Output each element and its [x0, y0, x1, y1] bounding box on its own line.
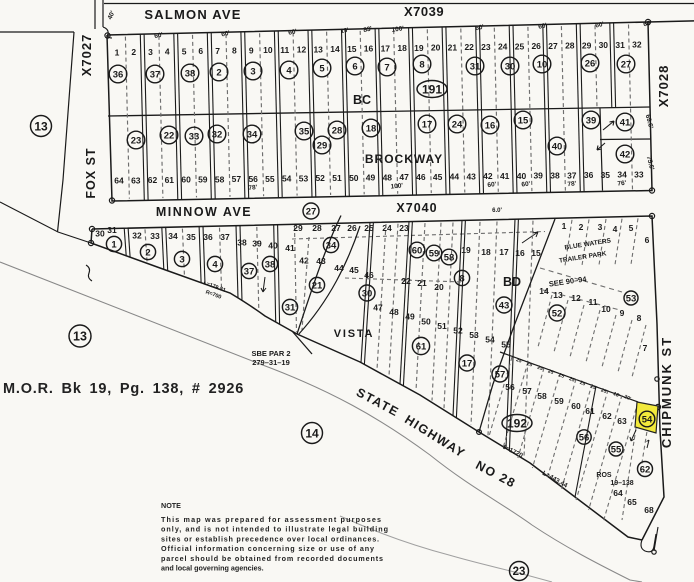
svg-text:BROCKWAY: BROCKWAY [365, 152, 443, 166]
svg-text:47: 47 [373, 303, 383, 313]
svg-text:55: 55 [501, 339, 511, 349]
svg-text:32: 32 [132, 231, 142, 241]
svg-text:Official information concernin: Official information concerning size or … [161, 544, 374, 553]
svg-text:36: 36 [113, 69, 124, 80]
svg-text:61: 61 [585, 406, 595, 416]
svg-text:1: 1 [111, 239, 117, 250]
svg-text:18: 18 [366, 123, 377, 134]
svg-text:38: 38 [185, 68, 196, 79]
svg-text:20: 20 [434, 282, 444, 292]
svg-text:36: 36 [584, 170, 594, 180]
svg-text:52: 52 [315, 173, 325, 183]
svg-text:38: 38 [265, 259, 276, 270]
svg-text:60: 60 [571, 401, 581, 411]
svg-text:1: 1 [115, 48, 120, 58]
svg-text:59: 59 [429, 248, 440, 259]
svg-text:63: 63 [131, 175, 141, 185]
svg-text:61: 61 [165, 175, 175, 185]
svg-text:57: 57 [495, 369, 506, 380]
svg-text:21: 21 [448, 42, 458, 52]
svg-text:6: 6 [645, 235, 650, 245]
svg-text:279–31–19: 279–31–19 [252, 358, 290, 367]
svg-text:31: 31 [107, 225, 117, 235]
svg-text:SBE PAR 2: SBE PAR 2 [251, 349, 290, 358]
svg-text:56: 56 [248, 174, 258, 184]
svg-text:52: 52 [453, 326, 463, 336]
svg-text:48: 48 [383, 172, 393, 182]
svg-text:61: 61 [416, 341, 427, 352]
svg-text:54: 54 [642, 414, 653, 425]
svg-text:11: 11 [589, 297, 598, 307]
svg-text:17: 17 [462, 358, 473, 369]
svg-text:15: 15 [531, 248, 541, 258]
svg-text:52: 52 [552, 308, 563, 319]
svg-text:X7027: X7027 [79, 34, 94, 77]
svg-text:192: 192 [507, 416, 527, 430]
svg-text:7: 7 [384, 62, 389, 73]
svg-text:59: 59 [554, 396, 564, 406]
svg-text:BD: BD [503, 275, 521, 289]
svg-text:45: 45 [433, 172, 443, 182]
svg-text:30: 30 [95, 229, 105, 239]
svg-text:54: 54 [282, 174, 292, 184]
svg-text:62: 62 [148, 175, 158, 185]
svg-text:6: 6 [352, 61, 357, 72]
svg-text:X7040: X7040 [396, 201, 437, 215]
svg-text:23: 23 [513, 566, 526, 578]
svg-text:38: 38 [237, 238, 247, 248]
svg-text:30: 30 [599, 40, 609, 50]
svg-text:46: 46 [416, 172, 426, 182]
svg-text:19: 19 [414, 43, 424, 53]
svg-text:37: 37 [150, 69, 161, 80]
svg-text:64: 64 [613, 488, 623, 498]
svg-text:34: 34 [617, 170, 627, 180]
svg-text:37: 37 [244, 266, 255, 277]
svg-text:43: 43 [499, 300, 510, 311]
svg-text:60: 60 [412, 245, 423, 256]
svg-text:100': 100' [390, 182, 404, 190]
svg-text:57: 57 [232, 174, 242, 184]
svg-text:20: 20 [431, 43, 441, 53]
svg-text:M.O.R. Bk 19, Pg. 138, # 2926: M.O.R. Bk 19, Pg. 138, # 2926 [3, 381, 244, 397]
svg-text:17: 17 [499, 247, 509, 257]
svg-text:55: 55 [611, 444, 622, 455]
svg-text:78': 78' [248, 184, 258, 192]
svg-text:13: 13 [73, 330, 87, 344]
svg-text:26: 26 [347, 223, 357, 233]
svg-text:3: 3 [148, 47, 153, 57]
svg-text:10: 10 [263, 45, 273, 55]
svg-text:only, and is not intended to i: only, and is not intended to illustrate … [161, 525, 388, 534]
svg-text:44: 44 [450, 172, 460, 182]
svg-text:45: 45 [349, 265, 359, 275]
svg-text:51: 51 [437, 321, 447, 331]
svg-text:57: 57 [522, 386, 532, 396]
svg-text:3: 3 [179, 254, 184, 265]
svg-text:35: 35 [601, 170, 611, 180]
svg-text:55: 55 [265, 174, 275, 184]
svg-text:50: 50 [421, 316, 431, 326]
svg-text:X7039: X7039 [404, 4, 444, 19]
svg-text:58: 58 [444, 252, 455, 263]
svg-text:6.0': 6.0' [492, 208, 502, 214]
svg-text:17: 17 [422, 119, 433, 130]
svg-text:24: 24 [498, 42, 508, 52]
svg-text:2: 2 [131, 47, 136, 57]
svg-text:32: 32 [212, 129, 223, 140]
svg-text:8: 8 [459, 273, 464, 284]
svg-text:8: 8 [637, 313, 642, 323]
svg-text:58: 58 [215, 174, 225, 184]
svg-text:4: 4 [212, 259, 218, 270]
svg-text:34: 34 [168, 231, 178, 241]
svg-text:47: 47 [399, 172, 409, 182]
svg-text:4: 4 [613, 224, 618, 234]
svg-text:48: 48 [389, 307, 399, 317]
svg-text:59: 59 [198, 175, 208, 185]
svg-text:13: 13 [553, 290, 563, 300]
svg-text:39: 39 [252, 239, 262, 249]
svg-text:and local governing agencies.: and local governing agencies. [161, 564, 264, 573]
svg-text:15: 15 [347, 44, 357, 54]
svg-text:34: 34 [247, 129, 258, 140]
svg-text:41: 41 [620, 117, 631, 128]
svg-text:16: 16 [515, 248, 525, 258]
svg-text:NOTE: NOTE [161, 501, 181, 510]
svg-text:39: 39 [586, 115, 597, 126]
svg-text:23: 23 [131, 135, 142, 146]
svg-text:11: 11 [280, 45, 289, 55]
svg-text:9: 9 [620, 308, 625, 318]
svg-text:53: 53 [299, 173, 309, 183]
svg-text:37: 37 [220, 232, 230, 242]
svg-text:28: 28 [312, 223, 322, 233]
svg-text:22: 22 [164, 130, 175, 141]
svg-text:This map was prepared for asse: This map was prepared for assessment pur… [161, 515, 381, 524]
svg-text:38: 38 [550, 171, 560, 181]
svg-text:31: 31 [470, 61, 481, 72]
svg-text:13: 13 [34, 119, 48, 133]
svg-text:7: 7 [643, 343, 648, 353]
svg-text:40: 40 [552, 141, 563, 152]
svg-text:16: 16 [364, 44, 374, 54]
svg-text:49: 49 [405, 312, 415, 322]
svg-text:10: 10 [537, 59, 548, 70]
svg-text:17: 17 [381, 43, 391, 53]
svg-text:19–138: 19–138 [610, 480, 633, 487]
svg-text:39: 39 [533, 171, 543, 181]
svg-text:8: 8 [232, 46, 237, 56]
svg-text:4: 4 [165, 47, 170, 57]
svg-text:23: 23 [399, 223, 409, 233]
svg-text:54: 54 [485, 335, 495, 345]
svg-text:40: 40 [517, 171, 527, 181]
svg-text:16: 16 [485, 120, 496, 131]
svg-text:29: 29 [582, 40, 592, 50]
svg-text:18: 18 [481, 247, 491, 257]
svg-text:14: 14 [330, 44, 340, 54]
svg-text:27: 27 [548, 41, 558, 51]
svg-text:25: 25 [515, 41, 525, 51]
svg-text:33: 33 [634, 170, 644, 180]
svg-text:10: 10 [601, 304, 611, 314]
svg-text:78': 78' [567, 180, 577, 188]
svg-text:2: 2 [579, 222, 584, 232]
svg-text:29: 29 [317, 140, 328, 151]
svg-text:43: 43 [466, 171, 476, 181]
svg-text:CHIPMUNK ST: CHIPMUNK ST [659, 336, 674, 448]
svg-text:MINNOW AVE: MINNOW AVE [156, 205, 252, 219]
svg-text:22: 22 [464, 42, 474, 52]
svg-text:5: 5 [629, 223, 634, 233]
svg-text:32: 32 [632, 40, 642, 50]
svg-text:23: 23 [481, 42, 491, 52]
svg-text:14: 14 [539, 286, 549, 296]
svg-text:ROS: ROS [596, 472, 612, 479]
svg-text:51: 51 [332, 173, 342, 183]
svg-text:2: 2 [145, 247, 150, 258]
svg-text:62: 62 [602, 411, 612, 421]
svg-text:42: 42 [483, 171, 493, 181]
svg-text:SALMON AVE: SALMON AVE [144, 7, 241, 22]
svg-text:7: 7 [215, 46, 220, 56]
svg-text:191: 191 [422, 82, 442, 96]
svg-text:21: 21 [417, 278, 427, 288]
svg-text:53: 53 [469, 330, 479, 340]
svg-text:29: 29 [293, 223, 303, 233]
svg-text:33: 33 [150, 231, 160, 241]
svg-text:14: 14 [305, 426, 319, 440]
svg-text:parcel should be obtained from: parcel should be obtained from recorded … [161, 554, 383, 563]
svg-text:4: 4 [286, 65, 292, 76]
svg-text:19: 19 [461, 245, 471, 255]
svg-text:36: 36 [203, 232, 213, 242]
svg-text:3: 3 [598, 222, 603, 232]
svg-text:31: 31 [285, 302, 296, 313]
svg-text:26: 26 [531, 41, 541, 51]
svg-text:12: 12 [297, 45, 307, 55]
svg-text:60': 60' [521, 181, 531, 189]
svg-text:56: 56 [579, 432, 590, 443]
svg-text:2: 2 [216, 67, 221, 78]
svg-text:30: 30 [505, 61, 516, 72]
svg-text:37: 37 [567, 170, 577, 180]
svg-text:35: 35 [299, 126, 310, 137]
svg-text:31: 31 [615, 40, 625, 50]
svg-text:8: 8 [419, 59, 424, 70]
svg-text:41: 41 [500, 171, 510, 181]
svg-text:58: 58 [537, 391, 547, 401]
svg-text:65: 65 [627, 497, 637, 507]
svg-text:62: 62 [640, 464, 651, 475]
svg-text:22: 22 [401, 276, 411, 286]
svg-text:13: 13 [313, 44, 323, 54]
svg-text:9: 9 [249, 45, 254, 55]
svg-text:60: 60 [181, 175, 191, 185]
svg-text:64: 64 [114, 176, 124, 186]
svg-text:27: 27 [306, 206, 317, 217]
svg-text:49: 49 [366, 173, 376, 183]
svg-text:27: 27 [621, 59, 632, 70]
svg-text:56: 56 [505, 382, 515, 392]
svg-text:53: 53 [626, 293, 637, 304]
svg-text:1: 1 [562, 221, 567, 231]
svg-text:33: 33 [189, 131, 200, 142]
svg-text:60': 60' [487, 181, 497, 189]
svg-text:41: 41 [285, 243, 295, 253]
svg-text:VISTA: VISTA [334, 328, 375, 340]
svg-text:sites or establish precedence: sites or establish precedence over local… [161, 534, 379, 543]
svg-text:76': 76' [617, 180, 627, 188]
svg-text:50: 50 [349, 173, 359, 183]
svg-text:3: 3 [250, 66, 255, 77]
svg-text:28: 28 [565, 41, 575, 51]
svg-text:35: 35 [186, 232, 196, 242]
svg-text:40: 40 [268, 241, 278, 251]
svg-text:24: 24 [452, 119, 463, 130]
svg-text:28: 28 [332, 125, 343, 136]
svg-text:5: 5 [319, 63, 325, 74]
svg-text:30: 30 [362, 288, 373, 299]
svg-text:5: 5 [182, 47, 187, 57]
svg-text:68: 68 [644, 505, 654, 515]
svg-text:FOX ST: FOX ST [84, 147, 98, 198]
svg-text:18: 18 [397, 43, 407, 53]
svg-text:26: 26 [585, 58, 596, 69]
svg-text:15: 15 [518, 115, 529, 126]
svg-text:BC: BC [353, 93, 371, 107]
svg-text:6: 6 [198, 46, 203, 56]
svg-text:12: 12 [571, 293, 581, 303]
svg-text:X7028: X7028 [656, 65, 671, 108]
svg-text:63: 63 [617, 416, 627, 426]
svg-text:24: 24 [382, 223, 392, 233]
svg-text:42: 42 [620, 149, 631, 160]
